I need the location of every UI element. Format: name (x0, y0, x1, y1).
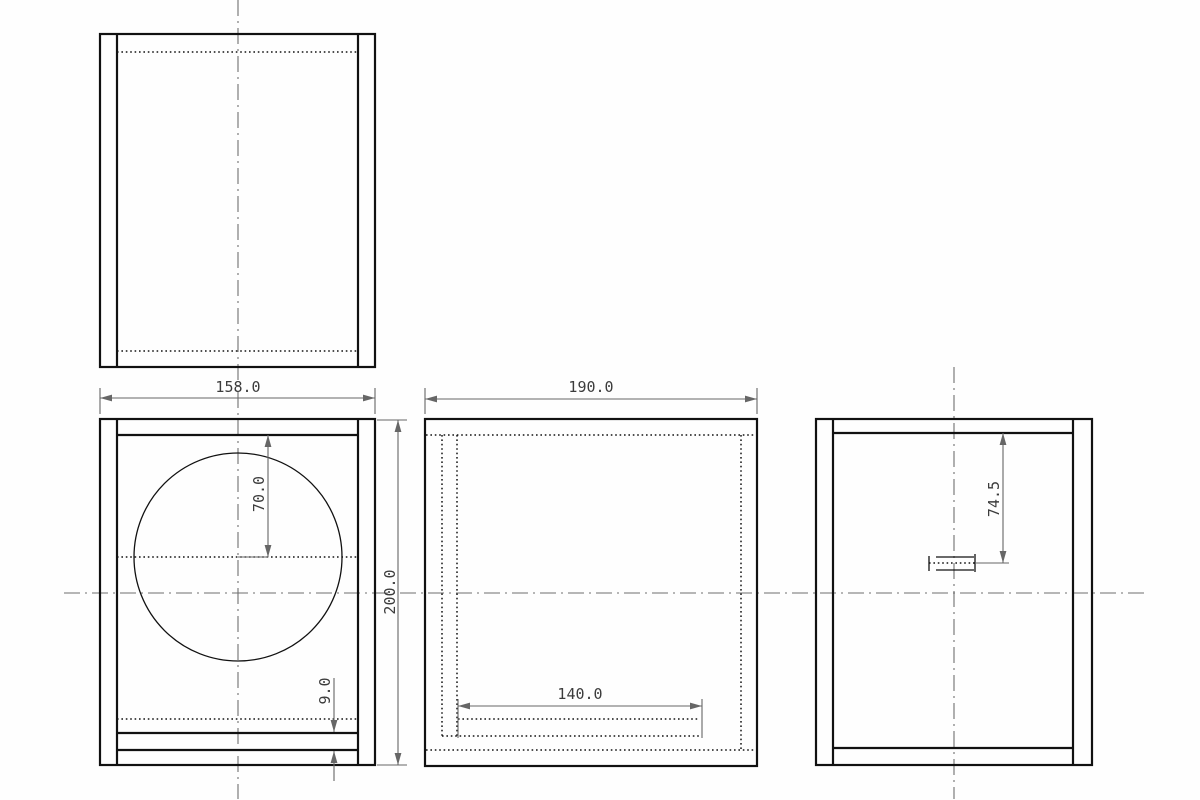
cad-drawing-canvas: 158.0 190.0 70.0 200.0 9.0 140.0 74.5 (0, 0, 1200, 800)
dim-label-terminal-offset: 74.5 (985, 481, 1003, 517)
dim-label-depth: 190.0 (568, 378, 613, 396)
dimension-duct-length: 140.0 (458, 685, 702, 738)
dim-label-slot-thickness: 9.0 (316, 677, 334, 704)
dimension-depth: 190.0 (425, 378, 757, 414)
dim-label-duct-length: 140.0 (557, 685, 602, 703)
dim-label-front-width: 158.0 (215, 378, 260, 396)
dimension-terminal-offset: 74.5 (975, 433, 1009, 563)
orthographic-views-svg: 158.0 190.0 70.0 200.0 9.0 140.0 74.5 (0, 0, 1200, 800)
dim-label-height: 200.0 (381, 569, 399, 614)
terminal-detail (929, 554, 975, 572)
dim-label-driver-offset: 70.0 (250, 476, 268, 512)
